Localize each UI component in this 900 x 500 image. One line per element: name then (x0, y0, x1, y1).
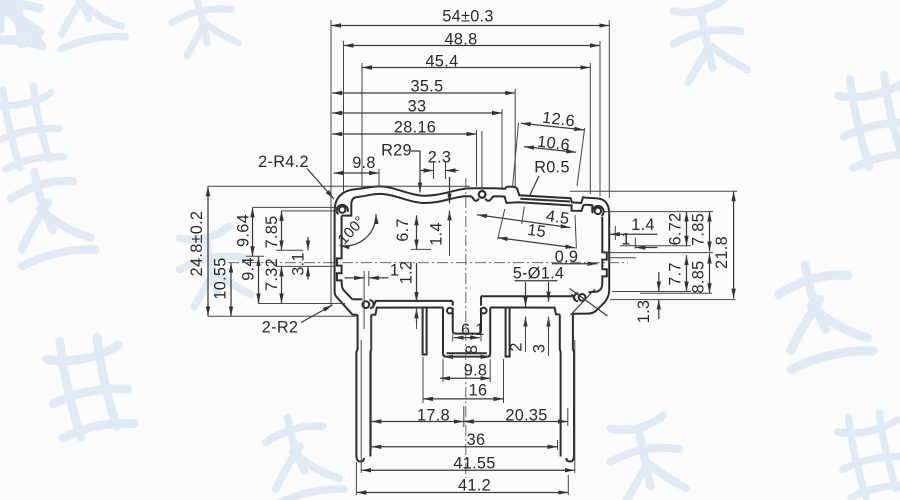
svg-text:7.7: 7.7 (667, 262, 685, 286)
svg-text:7.85: 7.85 (263, 216, 281, 249)
svg-text:R0.5: R0.5 (534, 159, 570, 177)
svg-text:6.72: 6.72 (667, 213, 685, 246)
svg-text:35.5: 35.5 (411, 77, 444, 95)
svg-text:17.8: 17.8 (417, 406, 450, 424)
svg-text:9.8: 9.8 (352, 154, 376, 172)
svg-text:1.4: 1.4 (631, 216, 655, 234)
svg-text:2-R4.2: 2-R4.2 (258, 153, 309, 171)
svg-text:9.4: 9.4 (240, 257, 258, 281)
svg-text:41.2: 41.2 (458, 477, 491, 495)
svg-text:21.8: 21.8 (713, 236, 731, 269)
svg-text:45.4: 45.4 (426, 52, 459, 70)
svg-text:1.2: 1.2 (398, 261, 416, 285)
svg-text:10.55: 10.55 (212, 257, 230, 299)
svg-text:R29: R29 (381, 142, 412, 160)
svg-text:9.8: 9.8 (464, 362, 488, 380)
svg-text:0.9: 0.9 (555, 248, 579, 266)
svg-text:15: 15 (526, 221, 547, 241)
svg-text:8.85: 8.85 (690, 261, 708, 294)
svg-text:16: 16 (469, 382, 488, 400)
svg-text:33: 33 (408, 97, 427, 115)
svg-text:12.6: 12.6 (541, 109, 576, 131)
svg-text:6.7: 6.7 (394, 218, 412, 242)
svg-text:24.8±0.2: 24.8±0.2 (188, 211, 206, 277)
svg-text:10.6: 10.6 (536, 133, 571, 155)
svg-text:1.4: 1.4 (428, 222, 446, 246)
svg-text:3.1: 3.1 (290, 252, 308, 276)
svg-text:4.5: 4.5 (545, 207, 571, 228)
svg-text:28.16: 28.16 (394, 118, 436, 136)
svg-text:9.64: 9.64 (235, 214, 253, 247)
svg-text:2-R2: 2-R2 (262, 319, 299, 337)
svg-text:6.1: 6.1 (461, 321, 485, 339)
svg-text:48.8: 48.8 (445, 30, 478, 48)
svg-text:1.3: 1.3 (635, 300, 653, 324)
svg-text:20.35: 20.35 (505, 407, 547, 425)
svg-text:100°: 100° (335, 213, 369, 248)
svg-text:36: 36 (467, 431, 486, 449)
svg-text:7.32: 7.32 (263, 258, 281, 291)
svg-text:54±0.3: 54±0.3 (442, 8, 493, 26)
svg-text:3: 3 (531, 344, 549, 353)
svg-text:1: 1 (390, 262, 399, 280)
svg-text:5-Ø1.4: 5-Ø1.4 (513, 265, 565, 283)
svg-text:2.3: 2.3 (428, 149, 452, 167)
svg-text:2: 2 (508, 342, 526, 351)
svg-text:7.85: 7.85 (690, 213, 708, 246)
svg-text:41.55: 41.55 (453, 454, 495, 472)
svg-text:8: 8 (463, 345, 481, 354)
